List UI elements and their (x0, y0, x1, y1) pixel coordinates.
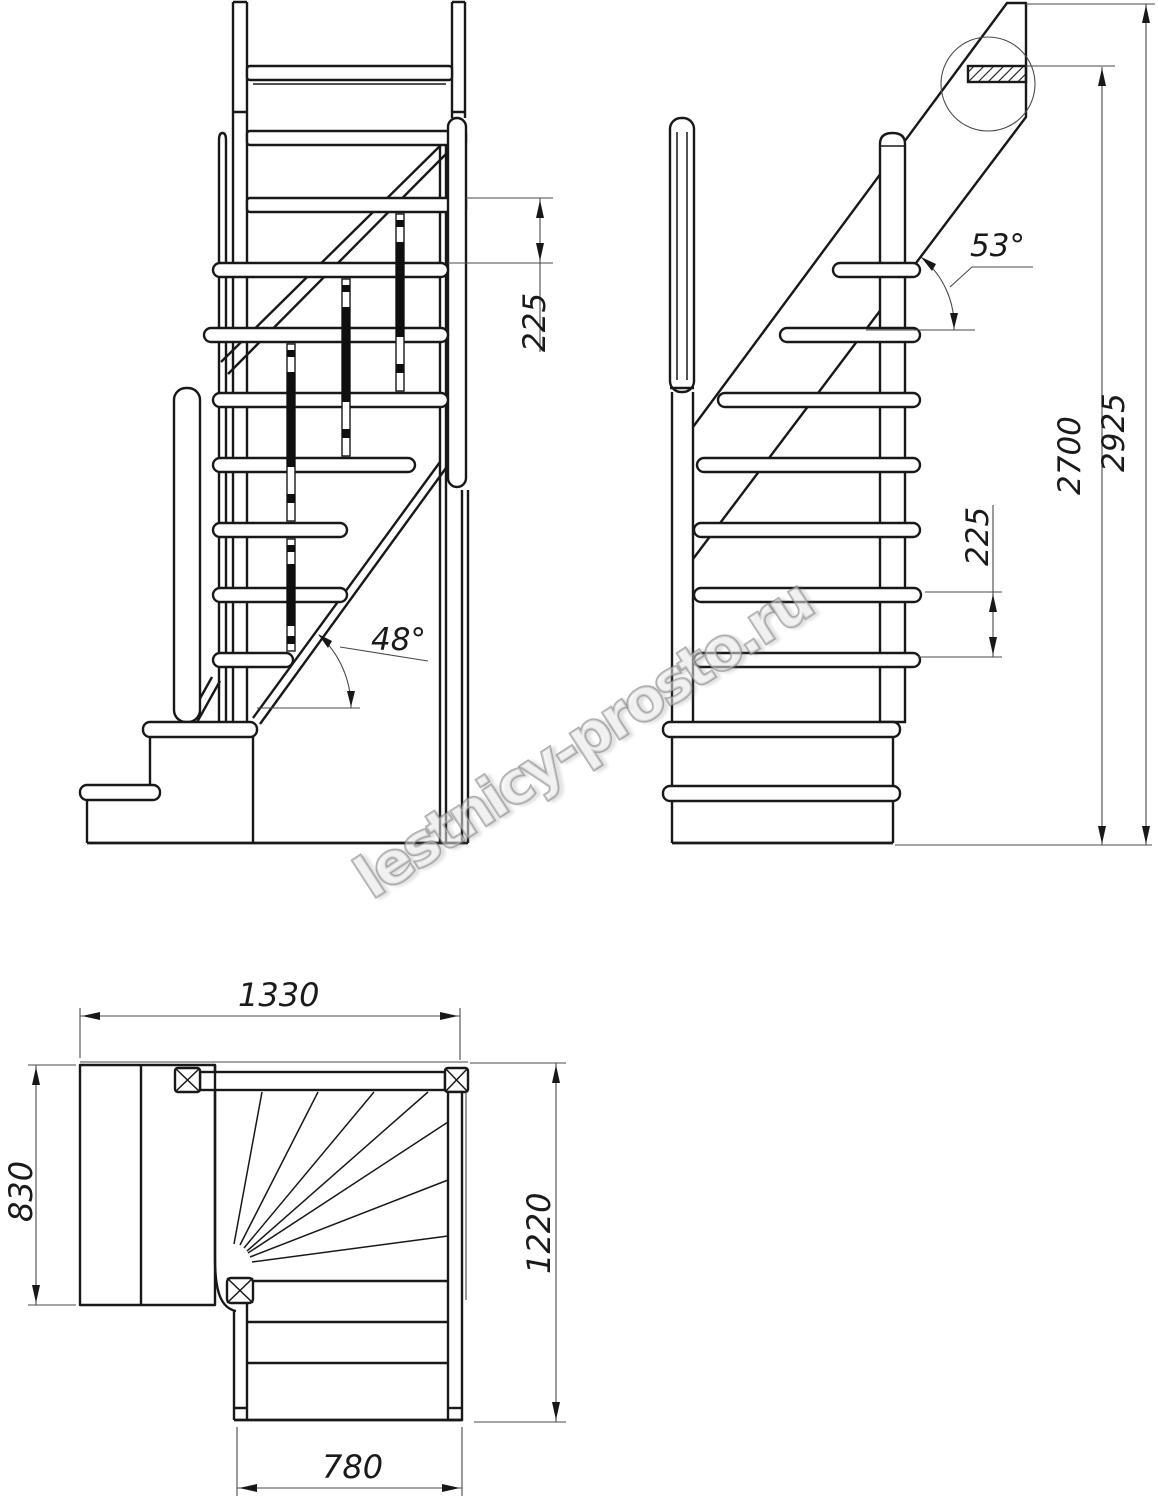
plan-top-rail (200, 1072, 445, 1090)
plan-right-stringer (448, 1092, 466, 1420)
front-corner-newel (174, 388, 200, 722)
side-total-height-label: 2925 (1096, 393, 1132, 472)
floor-slab-hatched (968, 66, 1026, 82)
plan-dim-1330: 1330 (80, 976, 460, 1060)
side-angle-label: 53° (970, 228, 1025, 264)
front-riser-dim-label: 225 (517, 293, 553, 352)
front-view: 225 48° (80, 2, 553, 843)
plan-bottom-newel (227, 1278, 253, 1303)
side-bottom-steps (663, 722, 900, 843)
drawing-canvas: 225 48° (0, 0, 1158, 1500)
front-rails (247, 66, 466, 212)
plan-landing-depth-label: 830 (2, 1161, 40, 1222)
front-angle-label: 48° (371, 622, 426, 658)
side-clear-height-label: 2700 (1052, 416, 1088, 495)
watermark-text: lestnicy-prosto.ru (343, 567, 824, 912)
side-view: 53° 225 2700 2925 (663, 3, 1155, 845)
side-dim-2925: 2925 (895, 4, 1155, 845)
plan-landing (80, 1065, 215, 1305)
front-treads (204, 263, 448, 667)
front-left-handrail (219, 133, 226, 722)
side-riser-dim-label: 225 (960, 507, 996, 566)
plan-flight-width-label: 780 (322, 1448, 383, 1486)
side-stringer-band (693, 3, 1026, 559)
front-right-handrail (448, 118, 466, 487)
detail-callout-circle (941, 37, 1035, 131)
staircase-technical-drawing: 225 48° (0, 0, 1158, 1500)
plan-view: 1330 830 1220 780 (2, 976, 566, 1496)
plan-dim-1220: 1220 (470, 1063, 566, 1422)
side-dim-225: 225 (918, 505, 1002, 657)
side-newel-post (880, 133, 905, 722)
plan-winder-fan (215, 1065, 448, 1311)
plan-width-label: 1330 (238, 976, 319, 1014)
plan-dim-780: 780 (237, 1427, 462, 1496)
plan-dim-830: 830 (2, 1065, 76, 1305)
plan-lower-flight (234, 1303, 462, 1420)
plan-depth-label: 1220 (520, 1193, 558, 1274)
